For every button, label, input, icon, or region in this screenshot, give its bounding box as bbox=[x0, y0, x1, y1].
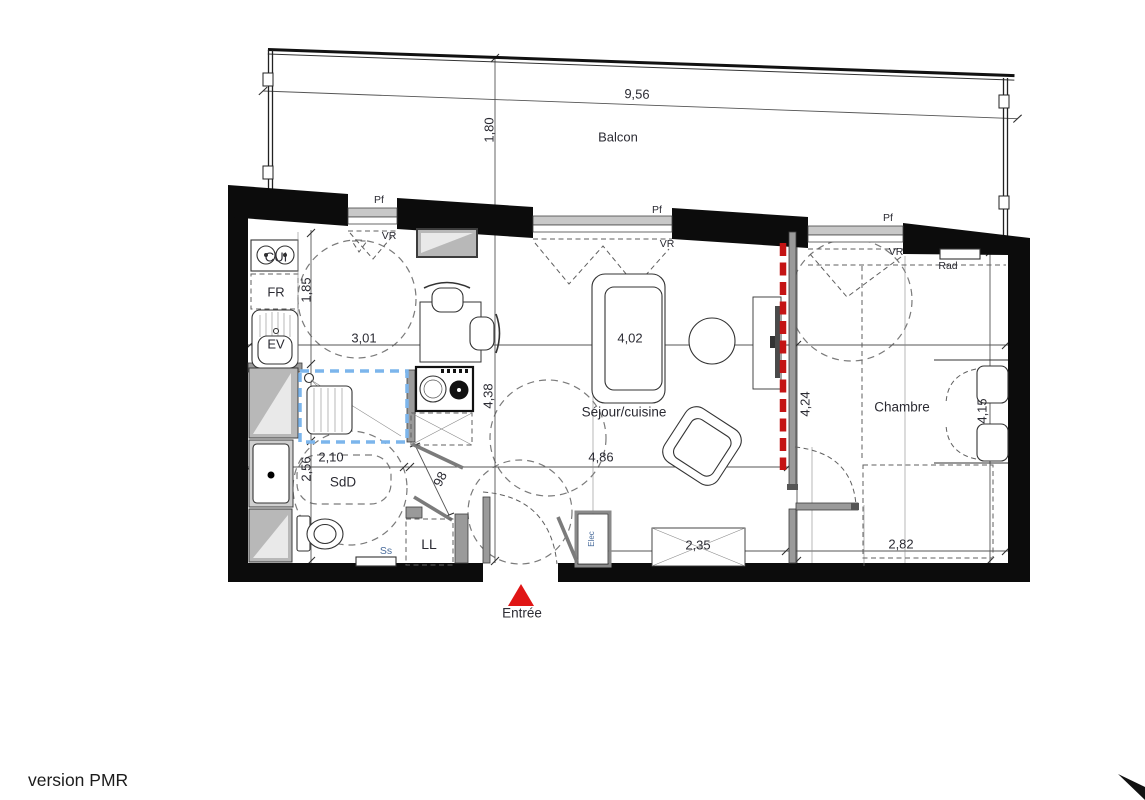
shower-icon bbox=[300, 371, 407, 442]
sink-cooktop-unit bbox=[416, 367, 473, 411]
tv-unit bbox=[753, 297, 781, 389]
dim-living-width: 4,02 bbox=[617, 332, 642, 345]
balcony-label: Balcon bbox=[598, 131, 638, 144]
dim-bedroom-width: 2,82 bbox=[888, 538, 913, 551]
dim-balcony-depth: 1,80 bbox=[483, 117, 496, 142]
dim-living-depth: 4,38 bbox=[482, 383, 495, 408]
towel-rail-icon bbox=[356, 557, 396, 566]
window2-shutter-label: VR bbox=[660, 239, 675, 250]
bathroom-label: SdD bbox=[330, 475, 356, 489]
entrance-arrow-icon bbox=[508, 584, 534, 606]
fridge-label: FR bbox=[267, 286, 284, 299]
dim-kitchen-depth: 1,85 bbox=[300, 277, 313, 302]
dim-living-length: 4,86 bbox=[588, 451, 613, 464]
toilet-icon bbox=[297, 516, 343, 551]
washbasin-icon bbox=[249, 440, 293, 507]
coffee-table bbox=[689, 318, 735, 364]
entrance-label: Entrée bbox=[502, 606, 542, 620]
dim-balcony-width: 9,56 bbox=[624, 87, 650, 101]
bedroom-label: Chambre bbox=[874, 400, 930, 414]
dim-kitchen-width: 3,01 bbox=[351, 332, 376, 345]
window1-type-label: Pf bbox=[374, 195, 384, 206]
window3-shutter-label: VR bbox=[889, 247, 904, 258]
sink-label: EV bbox=[267, 338, 284, 351]
plan-linework bbox=[0, 0, 1145, 800]
under-counter-cabinet bbox=[411, 413, 472, 445]
entrance-door bbox=[483, 492, 557, 564]
wall-cabinet bbox=[417, 229, 477, 257]
cooktop-label: CUI bbox=[265, 251, 287, 264]
washing-machine-label: LL bbox=[421, 537, 437, 551]
tall-cabinet-2 bbox=[249, 509, 292, 562]
window-3 bbox=[808, 226, 903, 297]
armchair bbox=[658, 402, 747, 491]
living-room-label: Séjour/cuisine bbox=[582, 405, 667, 419]
corner-arrow-icon bbox=[1118, 774, 1145, 800]
dim-wardrobe: 2,35 bbox=[685, 539, 710, 552]
electrical-panel-label: Elec bbox=[588, 531, 596, 547]
bedroom-door bbox=[795, 447, 856, 505]
window1-shutter-label: VR bbox=[382, 231, 397, 242]
dim-bedroom-depth: 4,15 bbox=[976, 398, 989, 423]
bed-icon bbox=[934, 360, 1008, 463]
tall-cabinet-1 bbox=[249, 368, 298, 438]
dim-partition: 4,24 bbox=[799, 391, 812, 416]
bedroom-closet-dashed bbox=[863, 465, 993, 558]
electrical-closet bbox=[558, 512, 610, 566]
window3-type-label: Pf bbox=[883, 213, 893, 224]
dim-bathroom-depth: 2,56 bbox=[300, 456, 313, 481]
radiator-icon bbox=[808, 249, 1006, 460]
towel-rail-label: Ss bbox=[380, 546, 392, 557]
window2-type-label: Pf bbox=[652, 205, 662, 216]
radiator-label: Rad bbox=[938, 261, 957, 272]
dim-bathroom-width: 2,10 bbox=[318, 451, 343, 464]
floor-plan: Balcon 9,56 1,80 Pf Pf Pf VR VR VR CUI F… bbox=[0, 0, 1145, 800]
version-label: version PMR bbox=[28, 770, 128, 791]
